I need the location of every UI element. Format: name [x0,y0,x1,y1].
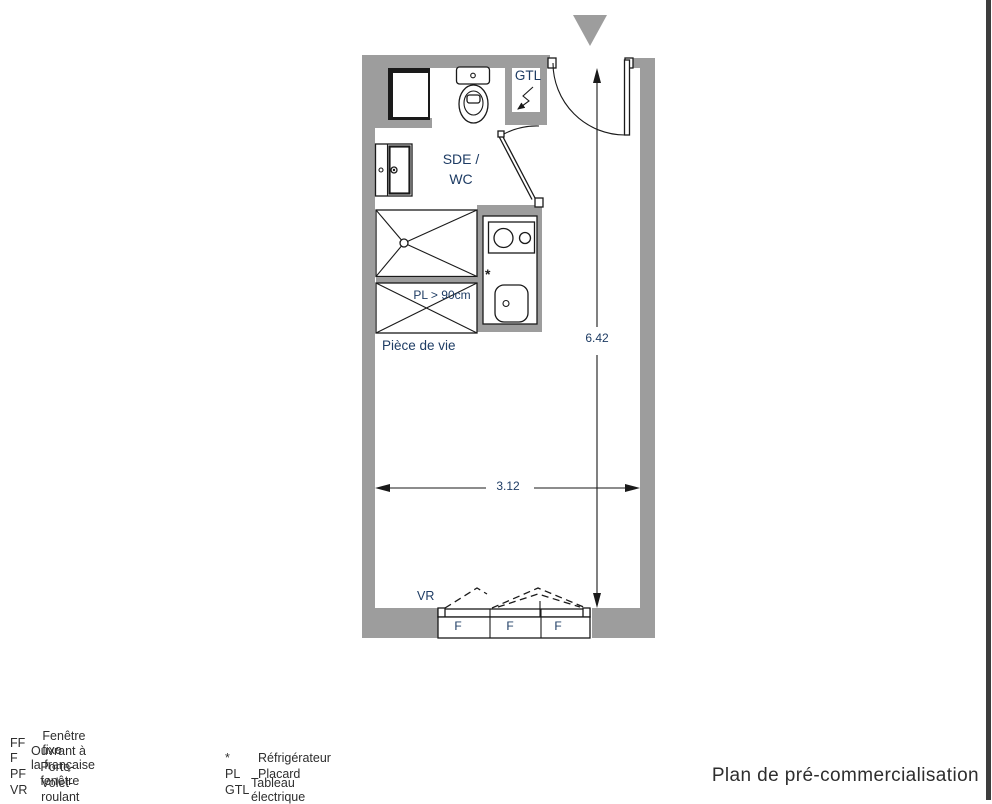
legend-text: Volet-roulant [41,776,99,804]
page-edge-bar [986,0,991,800]
shower-tray-icon [376,210,477,277]
legend-item-gtl: GTL Tableau électrique [225,782,331,798]
document-title: Plan de pré-commercialisation [712,765,979,787]
legend-text: Réfrigérateur [258,751,331,765]
bathroom-door [498,126,543,207]
closet-label: PL > 90cm [410,289,474,302]
legend-text: Tableau électrique [251,776,331,804]
entrance-marker-triangle [573,15,607,46]
entrance-door [548,58,633,135]
fridge-marker: * [485,267,490,282]
living-room-label: Pièce de vie [382,339,456,353]
window-label-3: F [548,620,568,633]
vanity-cabinet-icon [376,144,413,196]
window-label-1: F [448,620,468,633]
legend-abbr: VR [10,783,41,797]
legend-abbr: PF [10,767,40,781]
legend-abbr: * [225,751,258,765]
legend-abbr: F [10,751,31,765]
gtl-label: GTL [510,69,546,83]
floor-plan: GTL SDE / WC PL > 90cm Pièce de vie * VR… [362,55,655,640]
toilet-icon [457,67,490,123]
kitchen-counter-icon [483,216,537,324]
window-swing-dashes [445,588,586,608]
legend-abbr: GTL [225,783,251,797]
gtl-arrow-icon [518,87,533,109]
dimension-height-value: 6.42 [572,332,622,345]
legend-item-fridge: * Réfrigérateur [225,751,331,767]
bathroom-label-line2: WC [440,172,482,187]
dimension-width-value: 3.12 [478,480,538,493]
window-label-2: F [500,620,520,633]
vr-label: VR [417,590,434,603]
legend-item-vr: VR Volet-roulant [10,782,99,798]
bathroom-label-line1: SDE / [440,152,482,167]
legend-column-2: * Réfrigérateur PL Placard GTL Tableau é… [225,751,331,798]
wall-shower-closet [376,277,477,283]
legend-column-1: FF Fenêtre fixe F Ouvrant à la française… [10,735,99,797]
